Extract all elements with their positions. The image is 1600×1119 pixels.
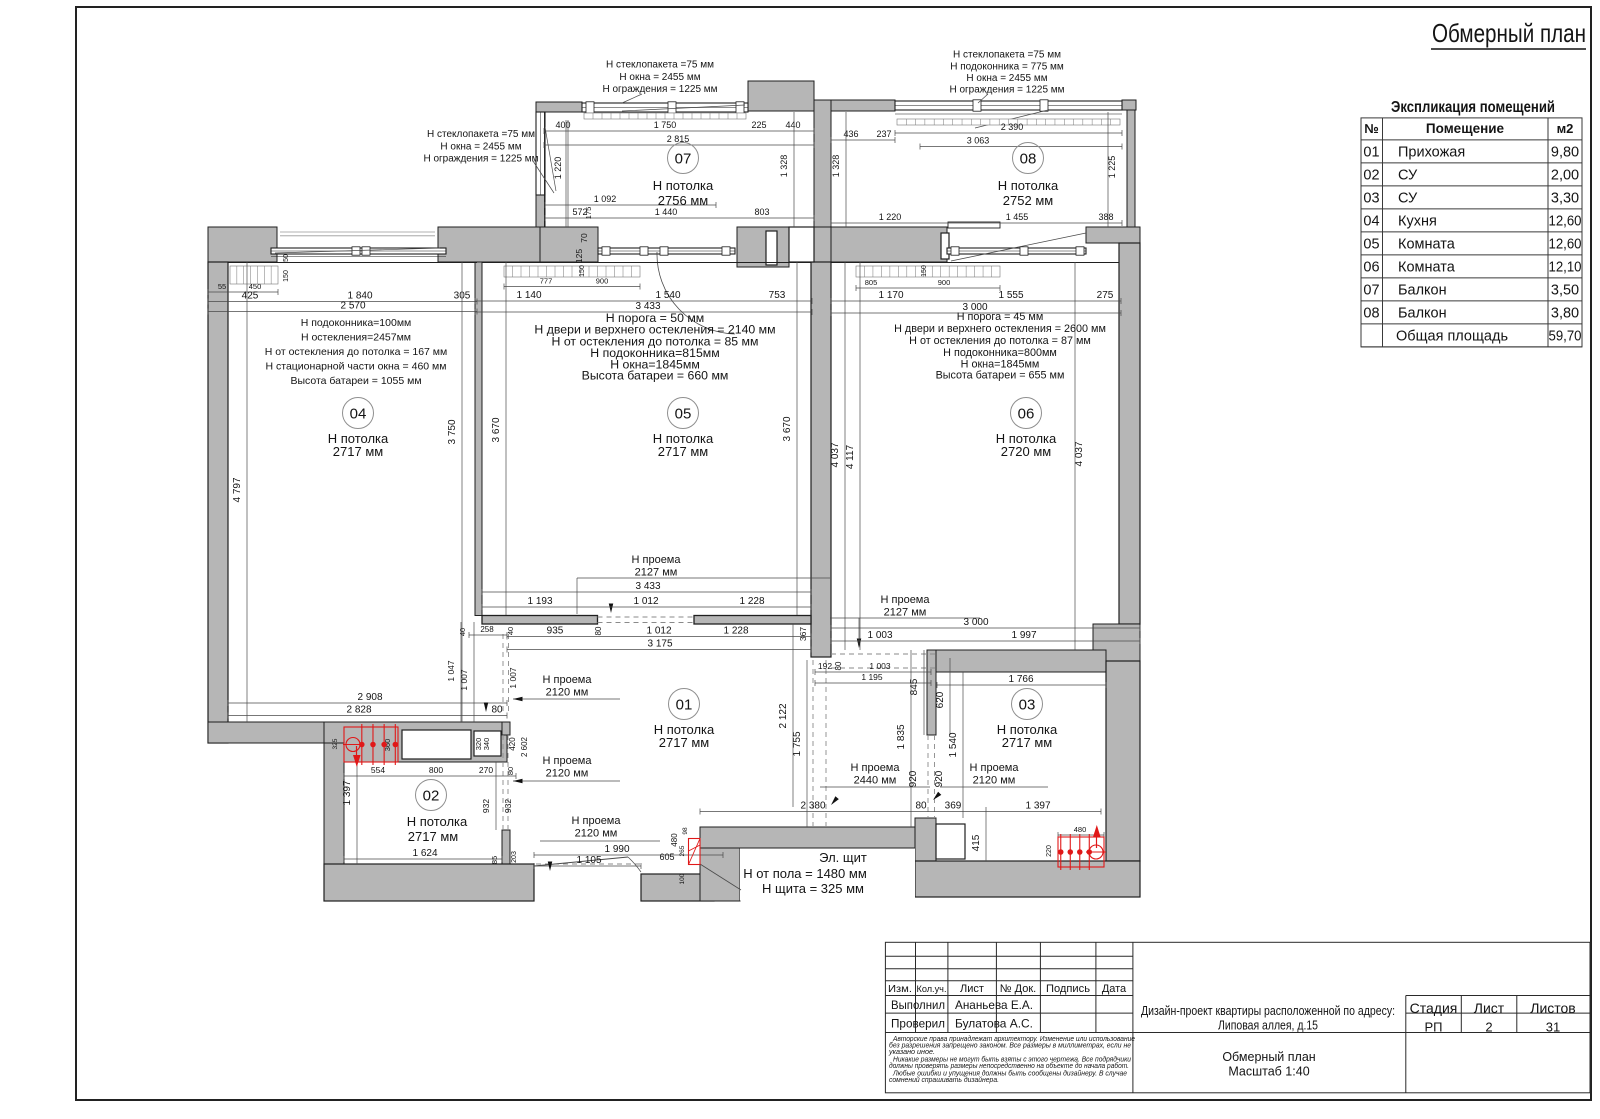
svg-text:59,70: 59,70 — [1549, 328, 1582, 344]
svg-text:1 228: 1 228 — [723, 626, 748, 637]
svg-text:м2: м2 — [1557, 121, 1574, 136]
svg-text:2 390: 2 390 — [1001, 122, 1024, 132]
svg-text:Высота батареи = 660 мм: Высота батареи = 660 мм — [582, 369, 729, 383]
svg-text:Н окна = 2455 мм: Н окна = 2455 мм — [966, 73, 1047, 84]
svg-text:1 047: 1 047 — [446, 660, 456, 682]
svg-text:80: 80 — [491, 705, 503, 716]
svg-text:Лист: Лист — [960, 983, 984, 995]
svg-text:920: 920 — [908, 770, 919, 787]
svg-text:175: 175 — [584, 207, 593, 220]
svg-text:55: 55 — [218, 282, 226, 291]
svg-text:1 003: 1 003 — [867, 630, 892, 641]
svg-text:3 670: 3 670 — [782, 416, 793, 441]
svg-text:1 540: 1 540 — [655, 290, 680, 301]
svg-text:Кухня: Кухня — [1398, 213, 1437, 229]
svg-text:Н потолка: Н потолка — [407, 814, 468, 829]
svg-text:Н стационарной части окна = 46: Н стационарной части окна = 460 мм — [266, 361, 447, 373]
svg-text:Н стеклопакета =75 мм: Н стеклопакета =75 мм — [427, 129, 535, 140]
svg-text:340: 340 — [482, 738, 491, 751]
svg-text:Обмерный план: Обмерный план — [1222, 1050, 1315, 1064]
svg-text:80: 80 — [506, 767, 515, 775]
svg-text:9,80: 9,80 — [1551, 144, 1579, 160]
svg-text:Н проема: Н проема — [632, 554, 682, 566]
svg-text:1 835: 1 835 — [896, 724, 907, 749]
svg-text:1 328: 1 328 — [831, 155, 841, 178]
svg-text:08: 08 — [1020, 151, 1037, 168]
svg-text:Эл. щит: Эл. щит — [819, 850, 867, 865]
svg-text:02: 02 — [423, 788, 440, 805]
svg-text:1 540: 1 540 — [948, 732, 959, 757]
svg-text:Н проема: Н проема — [543, 755, 593, 767]
svg-text:05: 05 — [1363, 236, 1379, 252]
svg-text:06: 06 — [1363, 259, 1379, 275]
svg-text:Выполнил: Выполнил — [891, 998, 945, 1012]
svg-text:2440 мм: 2440 мм — [854, 775, 897, 787]
svg-text:Высота батареи = 1055 мм: Высота батареи = 1055 мм — [290, 375, 421, 387]
svg-text:1 750: 1 750 — [654, 120, 677, 130]
svg-text:Ананьева Е.А.: Ананьева Е.А. — [955, 998, 1033, 1012]
svg-text:2720 мм: 2720 мм — [1001, 444, 1051, 459]
svg-text:04: 04 — [1363, 213, 1379, 229]
svg-text:2: 2 — [1485, 1020, 1492, 1035]
svg-text:275: 275 — [1097, 290, 1114, 301]
svg-text:07: 07 — [675, 151, 692, 168]
svg-text:2717 мм: 2717 мм — [408, 829, 458, 844]
svg-text:1 092: 1 092 — [594, 194, 617, 204]
svg-text:258: 258 — [480, 625, 494, 634]
svg-text:225: 225 — [751, 120, 766, 130]
svg-text:04: 04 — [350, 406, 367, 423]
svg-text:РП: РП — [1424, 1020, 1442, 1035]
svg-text:1 397: 1 397 — [342, 780, 353, 805]
svg-text:Н проема: Н проема — [572, 815, 622, 827]
svg-text:Масштаб 1:40: Масштаб 1:40 — [1228, 1065, 1309, 1079]
svg-text:Н стеклопакета =75 мм: Н стеклопакета =75 мм — [953, 50, 1061, 61]
svg-text:753: 753 — [769, 290, 786, 301]
svg-text:08: 08 — [1363, 305, 1379, 321]
svg-text:440: 440 — [785, 120, 800, 130]
svg-text:Обмерный план: Обмерный план — [1432, 18, 1586, 48]
svg-text:3 750: 3 750 — [447, 419, 458, 444]
svg-text:932: 932 — [481, 799, 491, 813]
svg-text:01: 01 — [1363, 144, 1379, 160]
svg-text:805: 805 — [865, 278, 878, 287]
svg-text:№ Док.: № Док. — [1000, 983, 1036, 995]
svg-text:1 193: 1 193 — [527, 596, 552, 607]
svg-text:Н ограждения = 1225 мм: Н ограждения = 1225 мм — [423, 154, 538, 165]
svg-text:Н проема: Н проема — [543, 674, 593, 686]
svg-text:2 602: 2 602 — [520, 736, 529, 757]
svg-text:1 328: 1 328 — [779, 155, 789, 178]
svg-text:31: 31 — [1546, 1020, 1560, 1035]
svg-text:3,50: 3,50 — [1551, 282, 1579, 298]
svg-text:2 570: 2 570 — [340, 301, 365, 312]
svg-text:150: 150 — [579, 265, 586, 277]
svg-text:1 003: 1 003 — [869, 661, 891, 671]
svg-text:1 225: 1 225 — [1107, 156, 1117, 179]
svg-text:4 117: 4 117 — [845, 444, 856, 469]
svg-text:2717 мм: 2717 мм — [658, 444, 708, 459]
svg-text:Н проема: Н проема — [851, 762, 901, 774]
svg-text:420: 420 — [508, 737, 517, 751]
svg-text:237: 237 — [876, 129, 891, 139]
svg-text:Н порога = 45 мм: Н порога = 45 мм — [957, 311, 1044, 323]
svg-text:Н двери и верхнего остекления: Н двери и верхнего остекления = 2600 мм — [894, 323, 1106, 335]
svg-text:Липовая аллея, д.15: Липовая аллея, д.15 — [1218, 1019, 1318, 1033]
svg-text:2120 мм: 2120 мм — [973, 775, 1016, 787]
svg-text:369: 369 — [945, 801, 962, 812]
svg-text:2,00: 2,00 — [1551, 167, 1579, 183]
svg-text:2120 мм: 2120 мм — [575, 828, 618, 840]
svg-text:Н потолка: Н потолка — [998, 178, 1059, 193]
svg-text:Н окна = 2455 мм: Н окна = 2455 мм — [440, 142, 521, 153]
svg-text:Н стеклопакета =75 мм: Н стеклопакета =75 мм — [606, 60, 714, 71]
svg-text:50: 50 — [283, 254, 290, 262]
svg-text:270: 270 — [479, 765, 493, 775]
svg-text:2 122: 2 122 — [778, 703, 789, 728]
svg-text:Стадия: Стадия — [1410, 1000, 1458, 1016]
svg-text:40: 40 — [506, 627, 515, 635]
svg-text:1 007: 1 007 — [508, 667, 518, 689]
svg-text:Комната: Комната — [1398, 236, 1456, 252]
svg-text:1 170: 1 170 — [878, 290, 903, 301]
svg-text:554: 554 — [371, 765, 385, 775]
svg-text:192: 192 — [818, 661, 832, 671]
svg-text:Н от остекления до потолка = 8: Н от остекления до потолка = 87 мм — [909, 335, 1091, 347]
svg-text:150: 150 — [921, 265, 928, 277]
svg-text:Помещение: Помещение — [1426, 121, 1505, 136]
svg-text:1 195: 1 195 — [861, 672, 883, 682]
svg-text:Н проема: Н проема — [881, 594, 931, 606]
svg-text:Н остекления=2457мм: Н остекления=2457мм — [301, 332, 411, 344]
svg-text:Н щита = 325 мм: Н щита = 325 мм — [762, 881, 864, 896]
svg-text:3 000: 3 000 — [963, 617, 988, 628]
svg-text:2752 мм: 2752 мм — [1003, 193, 1053, 208]
svg-text:Высота батареи = 655 мм: Высота батареи = 655 мм — [936, 370, 1065, 382]
svg-text:1 624: 1 624 — [412, 848, 437, 859]
svg-text:80: 80 — [594, 626, 603, 635]
svg-text:85: 85 — [490, 856, 499, 864]
svg-text:Булатова А.С.: Булатова А.С. — [955, 1017, 1033, 1031]
svg-text:2 828: 2 828 — [346, 705, 371, 716]
svg-text:3,80: 3,80 — [1551, 305, 1579, 321]
svg-text:1 997: 1 997 — [1011, 630, 1036, 641]
svg-text:Изм.: Изм. — [888, 984, 912, 995]
svg-text:1 105: 1 105 — [576, 855, 601, 866]
svg-text:1 228: 1 228 — [739, 596, 764, 607]
svg-text:2717 мм: 2717 мм — [1002, 735, 1052, 750]
svg-text:4 037: 4 037 — [1074, 441, 1085, 466]
svg-text:Н подоконника=100мм: Н подоконника=100мм — [301, 317, 412, 329]
svg-text:Общая площадь: Общая площадь — [1396, 328, 1508, 344]
svg-text:СУ: СУ — [1398, 167, 1418, 183]
svg-text:40: 40 — [458, 628, 467, 636]
svg-text:Проверил: Проверил — [891, 1017, 945, 1031]
svg-text:480: 480 — [670, 833, 679, 847]
svg-text:1 990: 1 990 — [604, 844, 629, 855]
svg-text:803: 803 — [754, 207, 769, 217]
svg-text:Н ограждения = 1225 мм: Н ограждения = 1225 мм — [602, 84, 717, 95]
svg-text:Н подоконника = 775 мм: Н подоконника = 775 мм — [950, 61, 1064, 72]
svg-text:1 440: 1 440 — [655, 207, 678, 217]
svg-text:367: 367 — [798, 627, 808, 641]
svg-text:265: 265 — [679, 845, 686, 856]
svg-text:03: 03 — [1363, 190, 1379, 206]
svg-text:98: 98 — [682, 827, 689, 835]
svg-text:Н от остекления до потолка = 1: Н от остекления до потолка = 167 мм — [265, 346, 448, 358]
svg-text:203: 203 — [511, 851, 518, 863]
svg-text:220: 220 — [1046, 845, 1053, 857]
svg-text:2127 мм: 2127 мм — [635, 567, 678, 579]
svg-text:Н ограждения = 1225 мм: Н ограждения = 1225 мм — [949, 84, 1064, 95]
svg-text:02: 02 — [1363, 167, 1379, 183]
svg-text:Дата: Дата — [1102, 983, 1127, 995]
svg-text:425: 425 — [242, 291, 259, 302]
svg-text:620: 620 — [935, 691, 946, 708]
svg-text:01: 01 — [676, 697, 693, 714]
svg-text:1 555: 1 555 — [998, 290, 1023, 301]
svg-text:06: 06 — [1018, 406, 1035, 423]
svg-text:480: 480 — [1074, 825, 1087, 834]
svg-text:2717 мм: 2717 мм — [659, 735, 709, 750]
svg-text:СУ: СУ — [1398, 190, 1418, 206]
svg-text:4 797: 4 797 — [232, 477, 243, 502]
svg-text:Дизайн-проект квартиры располо: Дизайн-проект квартиры расположенной по … — [1141, 1004, 1395, 1018]
svg-text:125: 125 — [574, 249, 584, 263]
svg-text:3 433: 3 433 — [635, 581, 660, 592]
svg-text:1 140: 1 140 — [516, 290, 541, 301]
svg-text:415: 415 — [971, 834, 982, 851]
svg-text:2127 мм: 2127 мм — [884, 607, 927, 619]
svg-text:900: 900 — [938, 278, 951, 287]
svg-text:2 380: 2 380 — [800, 801, 825, 812]
svg-text:Н подоконника=800мм: Н подоконника=800мм — [943, 347, 1057, 359]
svg-text:№: № — [1364, 121, 1379, 136]
svg-text:4 037: 4 037 — [830, 442, 841, 467]
svg-text:605: 605 — [659, 852, 674, 862]
svg-text:07: 07 — [1363, 282, 1379, 298]
svg-text:900: 900 — [596, 277, 609, 286]
svg-text:05: 05 — [675, 406, 692, 423]
svg-text:Экспликация помещений: Экспликация помещений — [1391, 99, 1555, 116]
svg-text:150: 150 — [283, 270, 290, 282]
svg-text:1 220: 1 220 — [879, 212, 902, 222]
svg-text:Н окна = 2455 мм: Н окна = 2455 мм — [619, 72, 700, 83]
svg-text:100: 100 — [679, 873, 686, 884]
svg-text:Прихожая: Прихожая — [1398, 144, 1465, 160]
svg-text:3 670: 3 670 — [491, 417, 502, 442]
svg-text:2 908: 2 908 — [357, 692, 382, 703]
svg-text:920: 920 — [934, 770, 945, 787]
svg-text:3,30: 3,30 — [1551, 190, 1579, 206]
svg-text:70: 70 — [579, 233, 589, 243]
svg-text:80: 80 — [834, 661, 843, 670]
svg-text:12,60: 12,60 — [1549, 236, 1582, 252]
svg-text:Листов: Листов — [1530, 1000, 1576, 1016]
svg-text:325: 325 — [332, 738, 339, 749]
svg-text:935: 935 — [547, 626, 564, 637]
svg-text:Лист: Лист — [1474, 1000, 1505, 1016]
svg-text:2717 мм: 2717 мм — [333, 444, 383, 459]
svg-text:1 012: 1 012 — [646, 626, 671, 637]
svg-text:80: 80 — [915, 801, 927, 812]
svg-text:932: 932 — [503, 799, 513, 813]
svg-text:Балкон: Балкон — [1398, 305, 1447, 321]
svg-text:12,10: 12,10 — [1549, 259, 1582, 275]
svg-text:2120 мм: 2120 мм — [546, 687, 589, 699]
svg-text:Н потолка: Н потолка — [653, 178, 714, 193]
svg-text:Н от пола = 1480 мм: Н от пола = 1480 мм — [743, 866, 867, 881]
svg-text:Балкон: Балкон — [1398, 282, 1447, 298]
svg-text:1 766: 1 766 — [1008, 674, 1033, 685]
svg-text:Кол.уч.: Кол.уч. — [917, 984, 947, 994]
svg-text:03: 03 — [1019, 697, 1036, 714]
svg-text:1 007: 1 007 — [459, 669, 469, 691]
svg-text:1 397: 1 397 — [1025, 801, 1050, 812]
svg-text:Н проема: Н проема — [970, 762, 1020, 774]
svg-text:3 175: 3 175 — [647, 639, 672, 650]
svg-text:388: 388 — [1098, 212, 1113, 222]
svg-text:Комната: Комната — [1398, 259, 1456, 275]
svg-text:Подпись: Подпись — [1046, 983, 1090, 995]
svg-text:800: 800 — [429, 765, 443, 775]
svg-text:1 755: 1 755 — [792, 731, 803, 756]
svg-text:1 012: 1 012 — [633, 596, 658, 607]
svg-text:1 455: 1 455 — [1006, 212, 1029, 222]
svg-text:1 220: 1 220 — [553, 157, 563, 180]
svg-text:12,60: 12,60 — [1549, 213, 1582, 229]
svg-text:сомнений спрашивать дизайнера.: сомнений спрашивать дизайнера. — [889, 1075, 999, 1084]
svg-text:2120 мм: 2120 мм — [546, 768, 589, 780]
svg-text:777: 777 — [540, 277, 553, 286]
svg-text:2756 мм: 2756 мм — [658, 193, 708, 208]
svg-text:3 063: 3 063 — [967, 136, 990, 146]
